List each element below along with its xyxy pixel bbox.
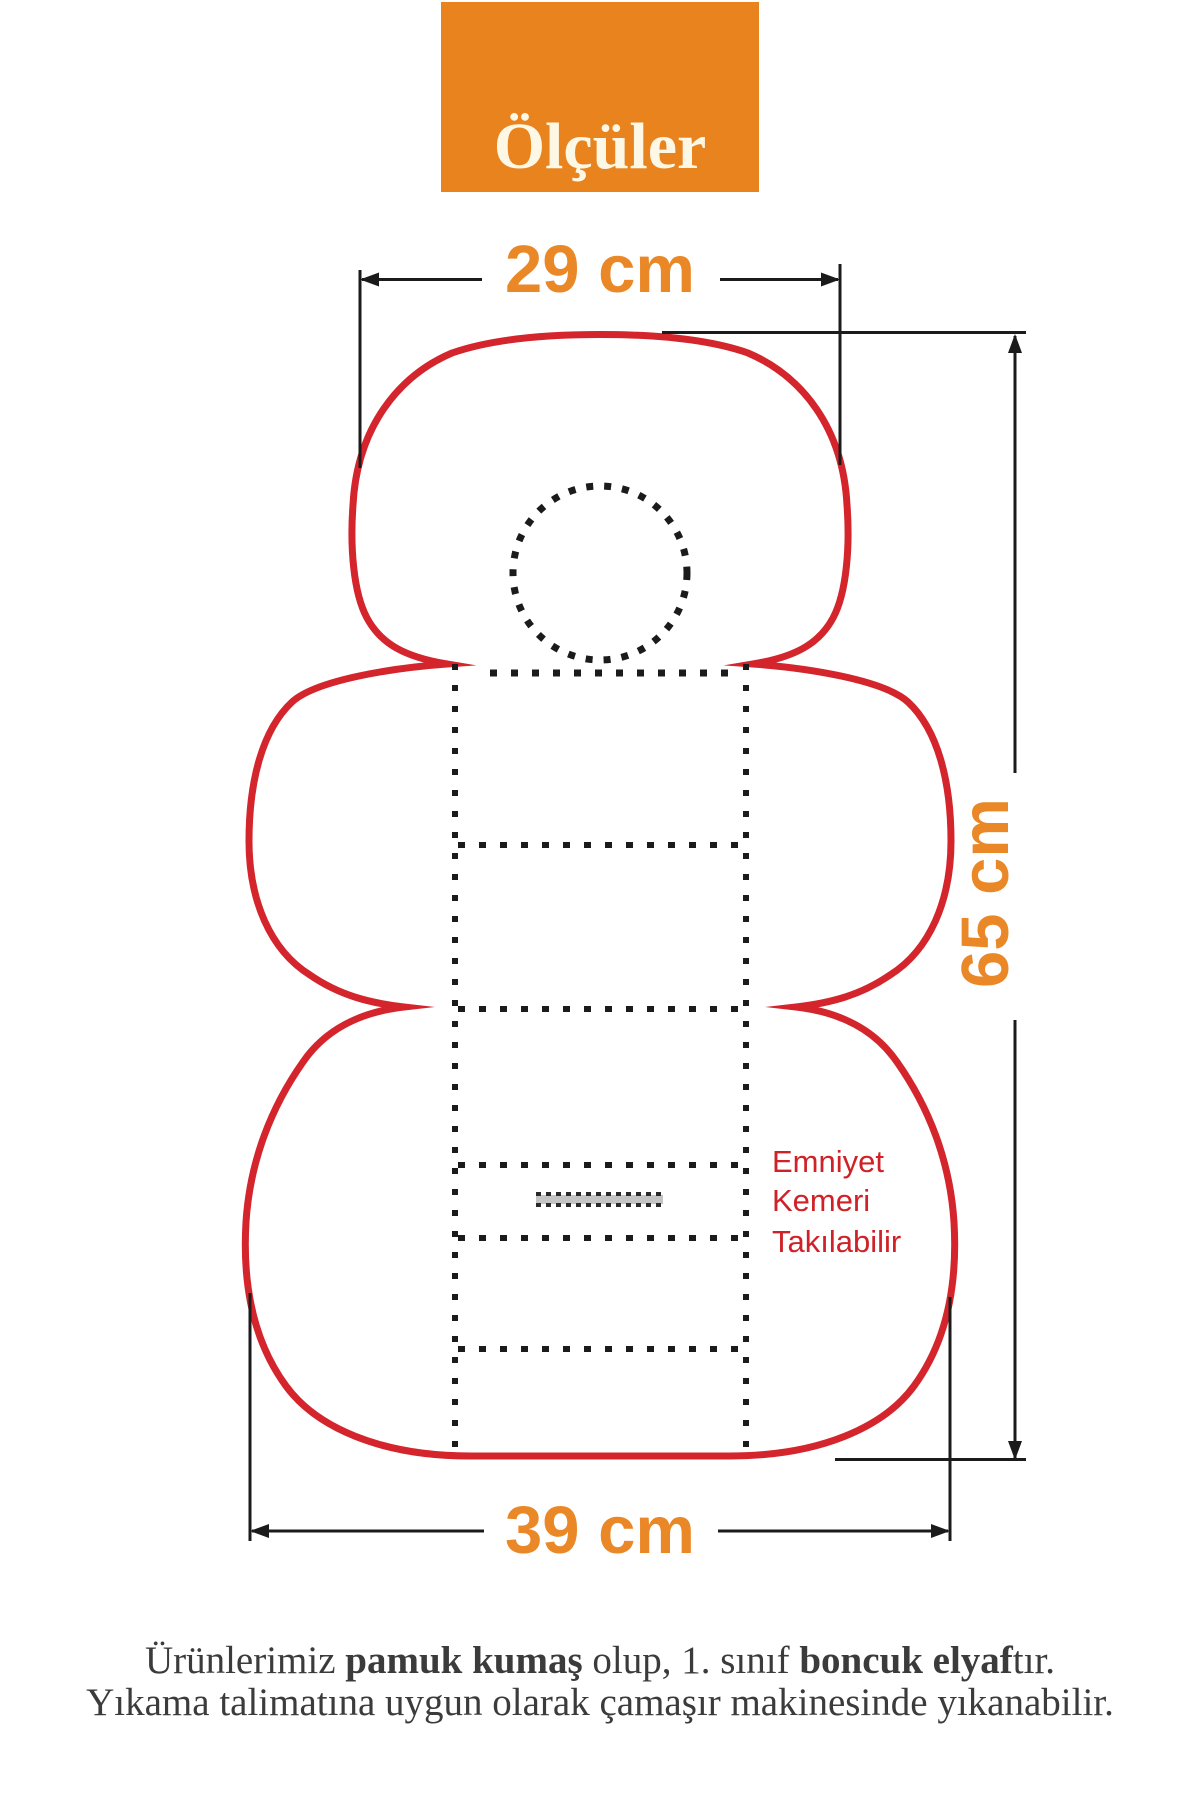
svg-text:65 cm: 65 cm: [948, 798, 1023, 988]
svg-text:Ölçüler: Ölçüler: [494, 110, 707, 183]
svg-text:Takılabilir: Takılabilir: [772, 1224, 901, 1259]
svg-text:29 cm: 29 cm: [505, 232, 695, 307]
svg-text:Emniyet: Emniyet: [772, 1144, 884, 1179]
svg-text:39 cm: 39 cm: [505, 1493, 695, 1568]
svg-text:Yıkama talimatına uygun olarak: Yıkama talimatına uygun olarak çamaşır m…: [86, 1681, 1114, 1724]
svg-text:Kemeri: Kemeri: [772, 1183, 870, 1218]
svg-text:Ürünlerimiz pamuk kumaş olup,: Ürünlerimiz pamuk kumaş olup, 1. sınıf b…: [145, 1639, 1055, 1682]
